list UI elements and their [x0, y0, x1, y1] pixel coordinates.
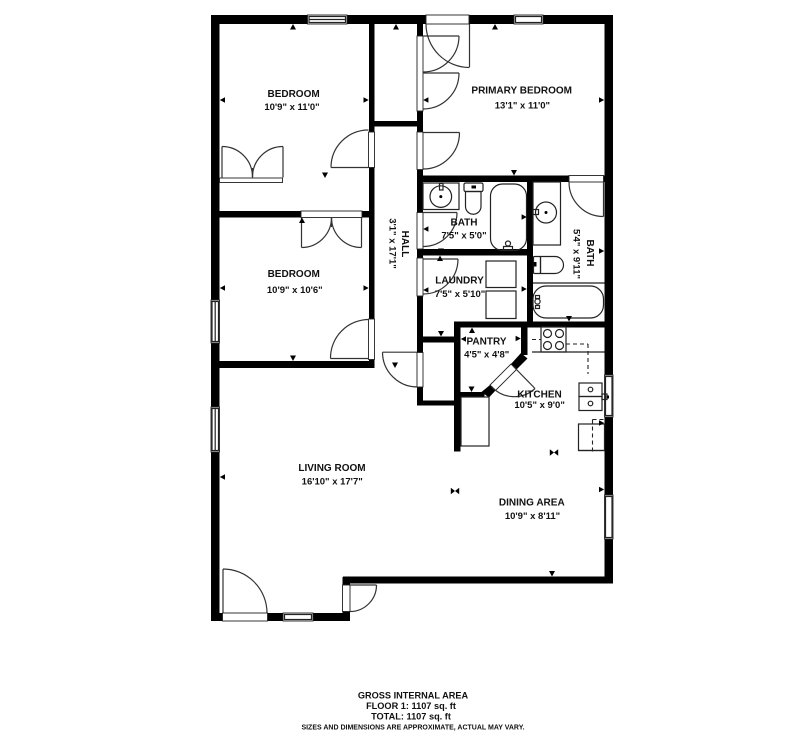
svg-text:BEDROOM: BEDROOM — [268, 269, 320, 280]
svg-text:TOTAL: 1107 sq. ft: TOTAL: 1107 sq. ft — [371, 711, 451, 721]
svg-text:7'5" x 5'0": 7'5" x 5'0" — [441, 230, 486, 241]
svg-text:7'5" x 5'10": 7'5" x 5'10" — [435, 289, 486, 300]
svg-text:GROSS INTERNAL AREA: GROSS INTERNAL AREA — [358, 690, 469, 700]
svg-text:DINING AREA: DINING AREA — [499, 498, 565, 509]
svg-text:HALL: HALL — [399, 231, 410, 258]
svg-text:PRIMARY BEDROOM: PRIMARY BEDROOM — [471, 86, 572, 97]
svg-text:10'9" x 10'6": 10'9" x 10'6" — [267, 285, 323, 296]
svg-text:BATH: BATH — [584, 239, 595, 266]
svg-text:5'4" x 9'11": 5'4" x 9'11" — [570, 229, 581, 279]
svg-text:BATH: BATH — [450, 218, 477, 229]
svg-text:FLOOR 1: 1107 sq. ft: FLOOR 1: 1107 sq. ft — [366, 701, 456, 711]
svg-text:4'5" x 4'8": 4'5" x 4'8" — [464, 349, 509, 360]
svg-text:13'1" x 11'0": 13'1" x 11'0" — [495, 101, 550, 112]
svg-text:16'10" x 17'7": 16'10" x 17'7" — [302, 476, 363, 487]
svg-text:10'9" x 8'11": 10'9" x 8'11" — [505, 511, 560, 522]
svg-text:3'1" x 17'1": 3'1" x 17'1" — [386, 218, 397, 269]
svg-text:10'9" x 11'0": 10'9" x 11'0" — [264, 102, 319, 113]
svg-text:PANTRY: PANTRY — [467, 336, 507, 347]
svg-text:SIZES AND DIMENSIONS ARE APPRO: SIZES AND DIMENSIONS ARE APPROXIMATE, AC… — [301, 725, 524, 732]
svg-text:KITCHEN: KITCHEN — [517, 390, 561, 401]
svg-text:BEDROOM: BEDROOM — [267, 89, 319, 100]
svg-text:LAUNDRY: LAUNDRY — [435, 276, 484, 287]
svg-text:10'5" x 9'0": 10'5" x 9'0" — [514, 400, 565, 411]
svg-text:LIVING ROOM: LIVING ROOM — [298, 463, 365, 474]
